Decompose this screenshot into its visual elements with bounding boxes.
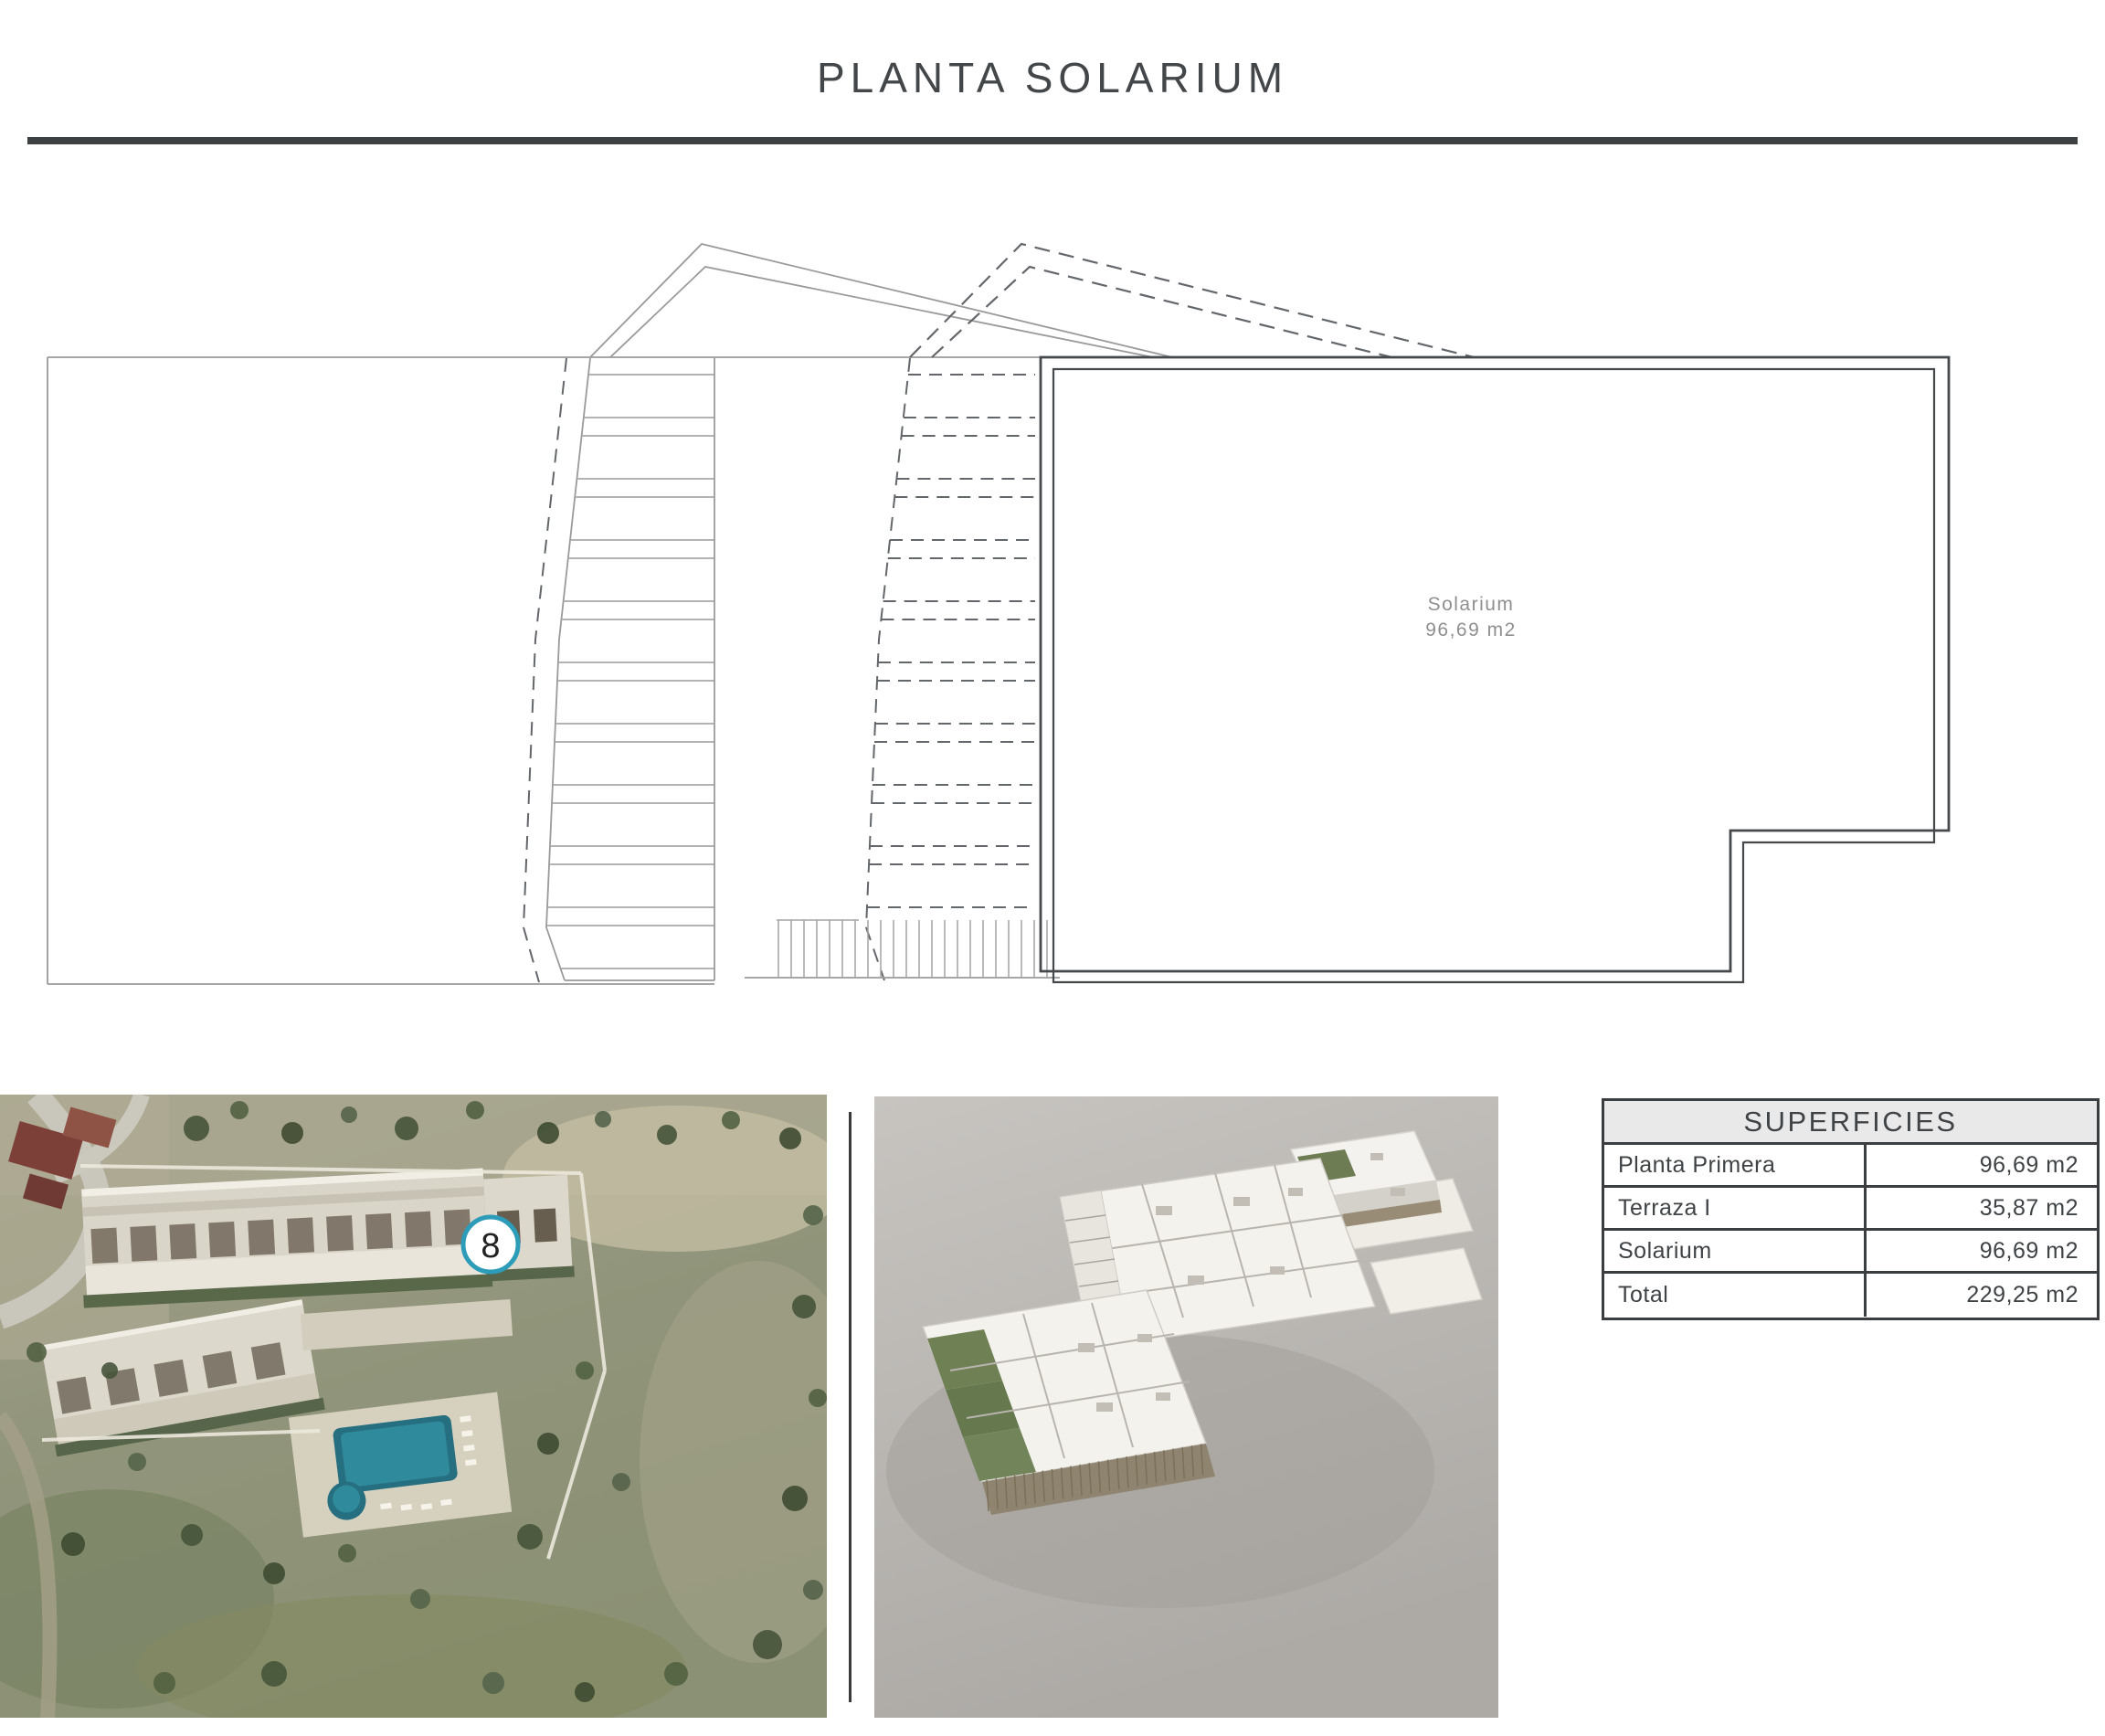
table-row-value: 35,87 m2 bbox=[1867, 1188, 2097, 1228]
table-row-value: 96,69 m2 bbox=[1867, 1231, 2097, 1271]
stairs-dashed bbox=[866, 358, 1035, 980]
table-row-value: 96,69 m2 bbox=[1867, 1145, 2097, 1185]
unit-marker-number: 8 bbox=[481, 1227, 500, 1265]
photo-divider bbox=[849, 1112, 852, 1702]
table-row: Total229,25 m2 bbox=[1604, 1274, 2097, 1317]
floor-plan-drawing: Solarium 96,69 m2 bbox=[48, 244, 1949, 984]
roof-outline-solid bbox=[590, 244, 1172, 357]
room-area-label: 96,69 m2 bbox=[1425, 619, 1517, 640]
stairs-solid bbox=[546, 358, 714, 980]
aerial-photo: 8 bbox=[0, 1095, 877, 1736]
table-row: Planta Primera96,69 m2 bbox=[1604, 1145, 2097, 1188]
roof-outline-dashed bbox=[910, 244, 1474, 357]
table-row-value: 229,25 m2 bbox=[1867, 1274, 2097, 1317]
room-label: Solarium bbox=[1428, 594, 1515, 615]
plot-outline bbox=[48, 357, 1041, 984]
bottom-hatch-strip bbox=[745, 920, 1060, 978]
surfaces-table: SUPERFICIES Planta Primera96,69 m2Terraz… bbox=[1602, 1098, 2100, 1320]
table-row: Terraza I35,87 m2 bbox=[1604, 1188, 2097, 1231]
room-label-group: Solarium 96,69 m2 bbox=[1425, 594, 1517, 640]
table-row-label: Planta Primera bbox=[1604, 1145, 1867, 1185]
page-artwork: Solarium 96,69 m2 bbox=[0, 0, 2105, 1736]
brochure-page: PLANTA SOLARIUM bbox=[0, 0, 2105, 1736]
table-row: Solarium96,69 m2 bbox=[1604, 1231, 2097, 1274]
table-row-label: Total bbox=[1604, 1274, 1867, 1317]
unit-marker: 8 bbox=[463, 1217, 518, 1272]
table-row-label: Terraza I bbox=[1604, 1188, 1867, 1228]
surfaces-table-header: SUPERFICIES bbox=[1604, 1101, 2097, 1145]
solarium-outline bbox=[1041, 357, 1949, 982]
table-row-label: Solarium bbox=[1604, 1231, 1867, 1271]
isometric-render-photo bbox=[874, 1096, 1498, 1718]
pool-area bbox=[289, 1392, 512, 1538]
stairs-dashed-edge bbox=[524, 358, 566, 982]
